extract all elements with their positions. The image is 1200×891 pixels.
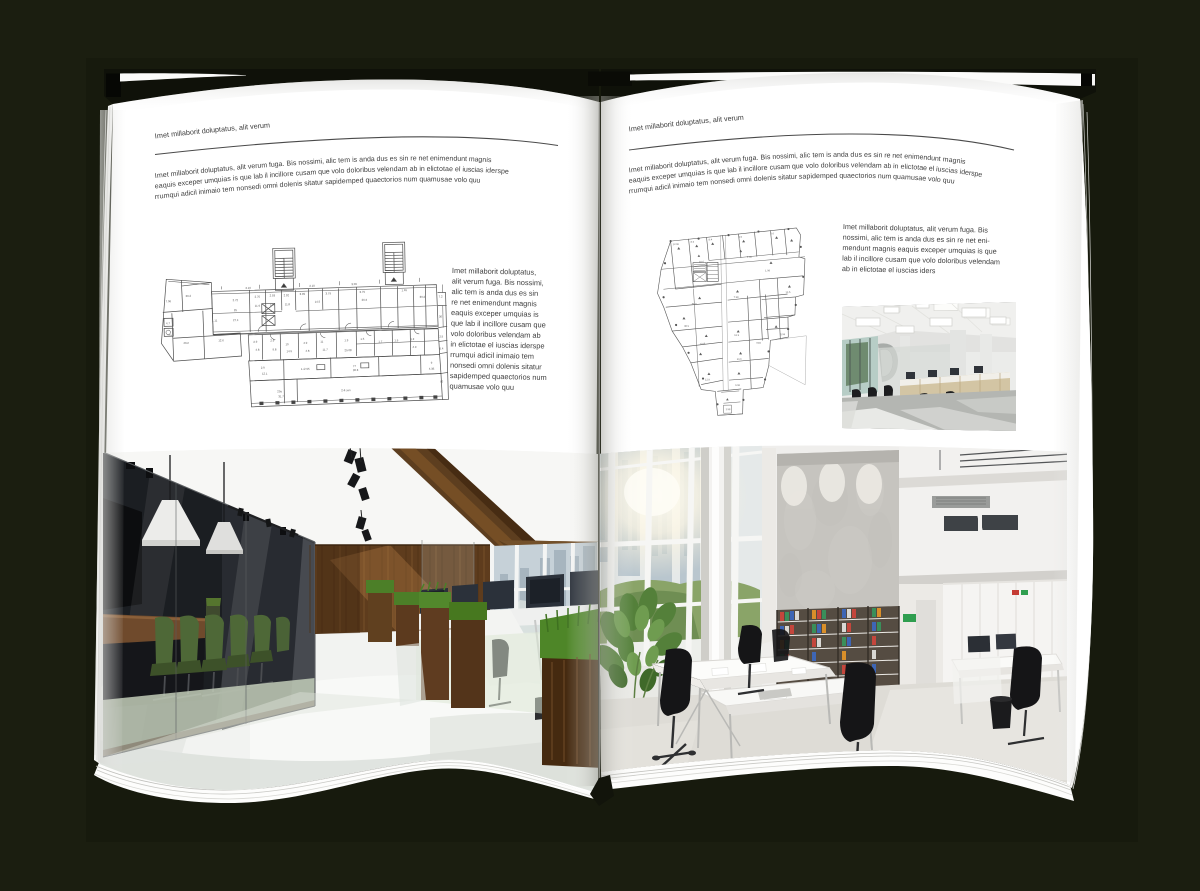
svg-text:2-й зал: 2-й зал xyxy=(341,388,351,392)
svg-text:27.4: 27.4 xyxy=(233,318,239,322)
svg-text:12.6: 12.6 xyxy=(218,338,224,342)
svg-text:12.9: 12.9 xyxy=(705,378,711,381)
svg-text:1.98: 1.98 xyxy=(726,408,732,411)
svg-text:5.96: 5.96 xyxy=(780,333,786,336)
svg-text:12a: 12a xyxy=(167,333,172,337)
svg-text:quamusae volo quu: quamusae volo quu xyxy=(449,381,514,391)
svg-text:25: 25 xyxy=(234,308,238,312)
svg-text:6.98: 6.98 xyxy=(700,343,706,346)
svg-text:Imet millaborit doluptatus,: Imet millaborit doluptatus, xyxy=(452,266,536,277)
svg-text:2.9: 2.9 xyxy=(253,340,257,344)
svg-text:12.9: 12.9 xyxy=(734,334,740,337)
svg-text:29.2: 29.2 xyxy=(186,294,192,298)
svg-text:18.6: 18.6 xyxy=(699,261,705,264)
svg-text:2.10: 2.10 xyxy=(245,286,251,290)
svg-text:1.9: 1.9 xyxy=(344,338,348,342)
svg-text:14.5: 14.5 xyxy=(315,300,321,304)
svg-text:1.2: 1.2 xyxy=(410,337,414,341)
svg-text:10.9: 10.9 xyxy=(737,358,743,361)
svg-text:12.96: 12.96 xyxy=(673,243,680,246)
svg-text:1.98: 1.98 xyxy=(765,269,771,272)
svg-text:re net enimendunt magnis: re net enimendunt magnis xyxy=(451,297,537,308)
svg-text:11.8: 11.8 xyxy=(285,302,291,306)
svg-text:eaquis exceper umquias is: eaquis exceper umquias is xyxy=(451,308,539,319)
svg-text:29a: 29a xyxy=(277,389,282,393)
svg-text:1.5: 1.5 xyxy=(360,337,364,341)
svg-text:1.11: 1.11 xyxy=(212,318,218,322)
svg-text:11.7: 11.7 xyxy=(322,348,328,352)
svg-text:alic tem is anda dus es sin: alic tem is anda dus es sin xyxy=(451,287,538,298)
svg-text:1.5: 1.5 xyxy=(394,338,398,342)
svg-text:9.8: 9.8 xyxy=(272,347,276,351)
svg-text:2.92: 2.92 xyxy=(284,293,290,297)
svg-text:4.9: 4.9 xyxy=(303,341,307,345)
svg-text:1+2.95: 1+2.95 xyxy=(301,367,310,371)
svg-text:2.9: 2.9 xyxy=(261,366,265,370)
svg-text:4.9: 4.9 xyxy=(412,345,416,349)
svg-text:3.09: 3.09 xyxy=(351,282,357,286)
svg-text:alit verum fuga. Bis nossimi,: alit verum fuga. Bis nossimi, xyxy=(452,276,544,287)
svg-text:5.4: 5.4 xyxy=(439,346,443,350)
svg-text:7.2: 7.2 xyxy=(439,295,443,299)
svg-text:3.79: 3.79 xyxy=(326,291,332,295)
svg-text:2.5: 2.5 xyxy=(439,334,443,338)
svg-text:1.45: 1.45 xyxy=(401,288,407,292)
svg-text:4.35: 4.35 xyxy=(429,367,435,371)
svg-text:10.5: 10.5 xyxy=(786,291,792,294)
svg-text:пом: пом xyxy=(756,342,761,345)
svg-text:2.75: 2.75 xyxy=(255,295,261,299)
svg-text:31.7: 31.7 xyxy=(278,394,284,398)
svg-text:30: 30 xyxy=(439,315,443,319)
svg-text:50: 50 xyxy=(440,380,444,384)
svg-text:25.08: 25.08 xyxy=(344,348,352,352)
svg-text:38.9: 38.9 xyxy=(684,325,690,328)
svg-text:volo doloribus velendam ab: volo doloribus velendam ab xyxy=(451,329,541,340)
svg-text:rrumqui adicil inimaio tem: rrumqui adicil inimaio tem xyxy=(450,350,534,361)
svg-text:3.09: 3.09 xyxy=(300,292,306,296)
svg-text:4.8: 4.8 xyxy=(306,349,310,353)
svg-text:12.1: 12.1 xyxy=(262,372,268,376)
svg-text:26.6: 26.6 xyxy=(362,298,368,302)
svg-text:1.7: 1.7 xyxy=(378,340,382,344)
svg-text:38.9: 38.9 xyxy=(692,303,698,306)
svg-text:4.8: 4.8 xyxy=(255,348,259,352)
svg-text:11: 11 xyxy=(320,340,323,344)
svg-text:13.8: 13.8 xyxy=(270,302,276,306)
svg-text:30.2: 30.2 xyxy=(420,295,426,299)
svg-text:90.3: 90.3 xyxy=(353,368,359,372)
svg-text:4.7: 4.7 xyxy=(166,321,170,325)
svg-text:7.98: 7.98 xyxy=(734,296,740,299)
svg-text:3.79: 3.79 xyxy=(359,290,365,294)
svg-text:2.72: 2.72 xyxy=(233,298,239,302)
svg-text:2.10: 2.10 xyxy=(309,284,315,288)
svg-text:14.5: 14.5 xyxy=(287,349,293,353)
svg-text:2.93: 2.93 xyxy=(270,293,276,297)
svg-text:7.06: 7.06 xyxy=(166,299,172,303)
svg-text:40.2: 40.2 xyxy=(183,341,189,345)
svg-text:9.98: 9.98 xyxy=(747,256,753,259)
svg-text:9.96: 9.96 xyxy=(735,384,741,387)
svg-text:10: 10 xyxy=(285,342,289,346)
svg-text:2.9: 2.9 xyxy=(270,338,274,342)
svg-text:11.9: 11.9 xyxy=(255,304,261,308)
